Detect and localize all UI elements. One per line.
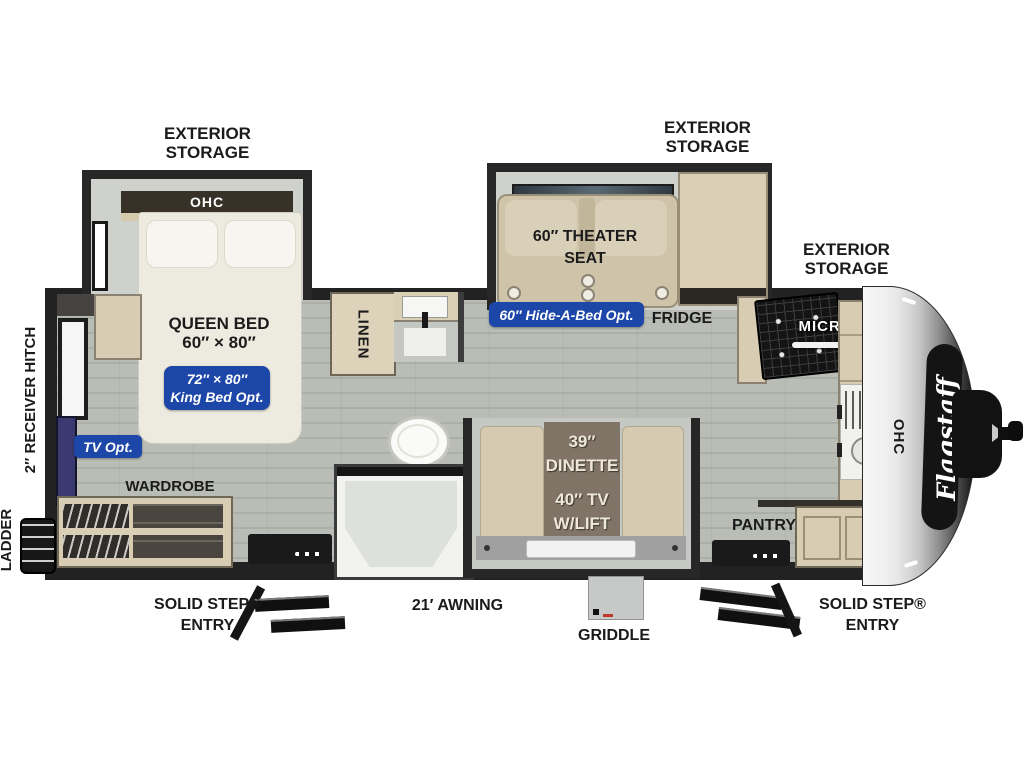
stove-cooktop <box>754 292 846 380</box>
tv-lift-bolt-icon <box>484 545 490 551</box>
solid-step-line1: SOLID STEP® <box>790 594 955 615</box>
kitchen-ohc-label: OHC <box>887 414 907 460</box>
cupholder-icon <box>507 286 521 300</box>
solid-step-line2: ENTRY <box>125 615 290 636</box>
exterior-storage-line2: STORAGE <box>130 143 285 162</box>
hide-a-bed-option-badge: 60″ Hide-A-Bed Opt. <box>489 302 644 327</box>
exterior-storage-line2: STORAGE <box>630 137 785 156</box>
solid-step-entry-label-right: SOLID STEP® ENTRY <box>790 594 955 636</box>
linen-label: LINEN <box>355 309 372 359</box>
griddle-accent-icon <box>603 614 613 617</box>
floorplan-canvas: OHC QUEEN BED 60″ × 80″ 72″ × 80″ King B… <box>0 0 1024 768</box>
griddle <box>588 576 644 620</box>
king-bed-option-badge: 72″ × 80″ King Bed Opt. <box>164 366 270 410</box>
receiver-hitch-label: 2″ RECEIVER HITCH <box>22 290 42 510</box>
exterior-storage-label-bedroom: EXTERIOR STORAGE <box>130 124 285 162</box>
theater-seat-label: 60″ THEATER SEAT <box>500 226 670 270</box>
queen-bed-label-line1: QUEEN BED <box>138 314 300 333</box>
queen-bed-label-line2: 60″ × 80″ <box>138 333 300 352</box>
theater-seat-label-line1: 60″ THEATER <box>500 226 670 248</box>
fridge-label-text: FRIDGE <box>652 310 712 327</box>
wardrobe-shelf-bar <box>61 528 225 535</box>
fridge <box>678 172 768 306</box>
exterior-storage-label-front: EXTERIOR STORAGE <box>769 240 924 278</box>
dinette-tv-label-line1: 40″ TV <box>472 488 692 512</box>
nightstand <box>94 294 142 360</box>
tv-lift-bolt-icon <box>672 545 678 551</box>
entry-step-right <box>700 587 783 610</box>
counter-handle-icon <box>837 443 842 457</box>
cabinet-drawer <box>803 516 841 560</box>
griddle-label-text: GRIDDLE <box>578 627 650 644</box>
ladder-label-text: LADDER <box>0 509 15 572</box>
rear-window <box>58 318 88 420</box>
bedroom-window-left <box>92 221 108 291</box>
hitch-knob-icon <box>1008 421 1023 441</box>
shower-pan <box>345 481 457 567</box>
shower <box>334 464 474 580</box>
exterior-storage-label-living: EXTERIOR STORAGE <box>630 118 785 156</box>
exterior-storage-line2: STORAGE <box>769 259 924 278</box>
bedroom-tv <box>56 416 77 506</box>
dinette-label: DINETTE <box>472 454 692 478</box>
ladder-label: LADDER <box>0 485 18 595</box>
awning-label-text: 21′ AWNING <box>412 597 503 614</box>
entry-platform-right-dots <box>753 554 781 558</box>
pantry-label: PANTRY <box>722 516 806 535</box>
receiver-hitch-label-text: 2″ RECEIVER HITCH <box>22 327 39 473</box>
lifted-tv <box>526 540 636 558</box>
rear-ladder <box>20 518 56 574</box>
bedroom-ohc-label: OHC <box>190 194 224 210</box>
counter-handle-icon <box>837 405 842 419</box>
bedroom-ohc-cabinet: OHC <box>121 191 293 213</box>
hide-a-bed-option-label: 60″ Hide-A-Bed Opt. <box>499 306 633 324</box>
tv-option-badge: TV Opt. <box>74 435 142 458</box>
fridge-label: FRIDGE <box>643 309 721 328</box>
bed-pillow-right <box>224 220 296 268</box>
dinette-tv-label-line2: W/LIFT <box>472 512 692 536</box>
wardrobe <box>57 496 233 568</box>
solid-step-line1: SOLID STEP® <box>125 594 290 615</box>
entry-platform-left <box>248 534 332 564</box>
pantry-label-text: PANTRY <box>732 517 796 534</box>
wardrobe-label: WARDROBE <box>118 477 222 496</box>
toilet <box>388 416 450 468</box>
griddle-knob-icon <box>593 609 599 615</box>
dinette-size-label: 39″ <box>472 430 692 454</box>
toilet-seat-ring <box>397 424 439 458</box>
theater-seat-label-line2: SEAT <box>500 248 670 270</box>
entry-platform-right <box>712 540 790 566</box>
dinette-label-block: 39″ DINETTE 40″ TV W/LIFT <box>472 430 692 536</box>
kitchen-ohc-label-text: OHC <box>890 419 907 455</box>
entry-platform-left-dots <box>295 552 323 556</box>
bath-vanity <box>394 292 464 362</box>
bath-mat <box>404 328 446 356</box>
cupholder-icon <box>655 286 669 300</box>
solid-step-line2: ENTRY <box>790 615 955 636</box>
bed-pillow-left <box>146 220 218 268</box>
exterior-storage-line1: EXTERIOR <box>630 118 785 137</box>
tv-lift-bar <box>476 536 686 560</box>
tv-option-label: TV Opt. <box>83 438 133 456</box>
cupholder-icon <box>581 288 595 302</box>
cupholder-icon <box>581 274 595 288</box>
king-bed-option-line1: 72″ × 80″ <box>187 370 248 388</box>
wardrobe-label-text: WARDROBE <box>125 478 214 495</box>
linen-closet: LINEN <box>330 292 396 376</box>
griddle-label: GRIDDLE <box>566 626 662 645</box>
exterior-storage-line1: EXTERIOR <box>769 240 924 259</box>
awning-label: 21′ AWNING <box>395 596 520 615</box>
solid-step-entry-label-left: SOLID STEP® ENTRY <box>125 594 290 636</box>
exterior-storage-line1: EXTERIOR <box>130 124 285 143</box>
queen-bed-label: QUEEN BED 60″ × 80″ <box>138 314 300 352</box>
king-bed-option-line2: King Bed Opt. <box>170 388 263 406</box>
shower-door-track <box>337 467 471 476</box>
